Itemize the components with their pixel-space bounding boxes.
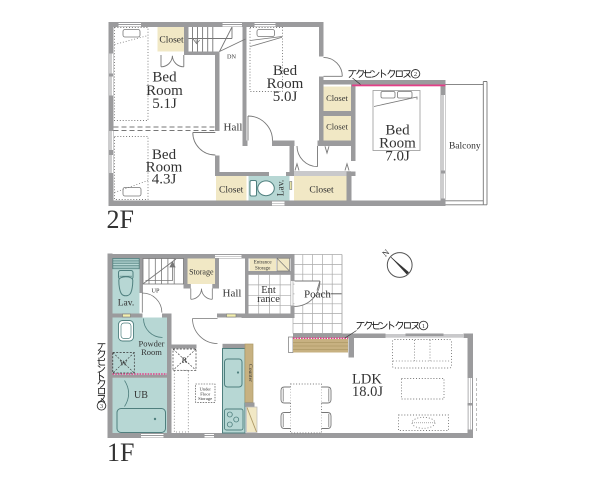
svg-text:Closet: Closet bbox=[326, 122, 348, 132]
svg-text:W: W bbox=[120, 359, 128, 368]
svg-text:rance: rance bbox=[257, 294, 280, 305]
svg-text:Lav.: Lav. bbox=[277, 180, 287, 197]
svg-text:4.3J: 4.3J bbox=[152, 172, 177, 188]
svg-text:Closet: Closet bbox=[326, 93, 348, 103]
svg-text:1F: 1F bbox=[107, 438, 134, 467]
svg-text:Hall: Hall bbox=[223, 288, 242, 300]
svg-text:Entrance: Entrance bbox=[254, 261, 273, 266]
svg-text:3: 3 bbox=[100, 403, 103, 410]
svg-text:DN: DN bbox=[227, 54, 236, 61]
svg-text:Hall: Hall bbox=[224, 122, 243, 134]
svg-text:2F: 2F bbox=[107, 205, 134, 234]
svg-text:5.1J: 5.1J bbox=[152, 96, 177, 112]
svg-text:Balcony: Balcony bbox=[449, 142, 481, 152]
svg-text:5.0J: 5.0J bbox=[273, 89, 298, 105]
svg-text:UP: UP bbox=[152, 288, 160, 295]
svg-text:Poach: Poach bbox=[304, 288, 331, 300]
svg-text:7.0J: 7.0J bbox=[385, 149, 410, 165]
svg-text:Lav.: Lav. bbox=[118, 299, 135, 309]
svg-text:1: 1 bbox=[422, 323, 425, 330]
svg-text:R: R bbox=[182, 355, 188, 365]
svg-text:Closet: Closet bbox=[219, 186, 244, 196]
svg-text:Storage: Storage bbox=[255, 266, 271, 271]
svg-text:UB: UB bbox=[134, 390, 148, 401]
svg-text:Storage: Storage bbox=[189, 268, 214, 277]
svg-text:Closet: Closet bbox=[309, 186, 334, 196]
svg-text:Room: Room bbox=[141, 347, 162, 357]
svg-text:2: 2 bbox=[414, 71, 417, 78]
svg-text:Closet: Closet bbox=[159, 36, 184, 46]
svg-text:Storage: Storage bbox=[198, 396, 212, 401]
svg-text:18.0J: 18.0J bbox=[352, 384, 383, 400]
svg-text:Counter: Counter bbox=[247, 364, 253, 382]
